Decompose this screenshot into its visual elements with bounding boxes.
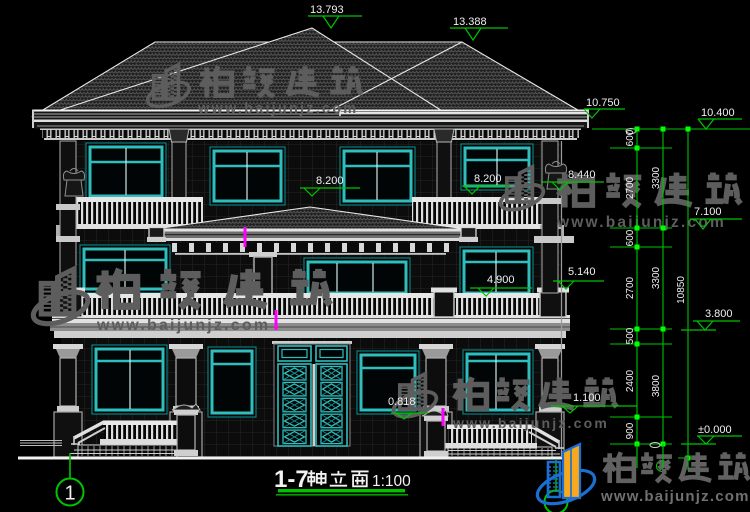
svg-text:500: 500	[625, 327, 636, 344]
svg-text:600: 600	[625, 129, 636, 146]
svg-text:7.100: 7.100	[694, 206, 722, 218]
svg-text:2700: 2700	[625, 176, 636, 199]
svg-text:600: 600	[625, 229, 636, 246]
svg-text:1:100: 1:100	[372, 473, 411, 490]
svg-text:3800: 3800	[651, 374, 662, 397]
svg-text:±0.000: ±0.000	[698, 424, 732, 436]
svg-text:0.818: 0.818	[388, 396, 416, 408]
svg-text:5.140: 5.140	[568, 266, 596, 278]
svg-text:10850: 10850	[676, 276, 687, 304]
svg-text:3300: 3300	[651, 166, 662, 189]
svg-text:3300: 3300	[651, 266, 662, 289]
svg-text:13.793: 13.793	[310, 4, 344, 16]
svg-text:www.baijunjz.com: www.baijunjz.com	[600, 488, 750, 505]
svg-text:www.baijunjz.com: www.baijunjz.com	[96, 317, 270, 334]
svg-text:8.200: 8.200	[474, 173, 502, 185]
svg-text:www.baijunjz.com: www.baijunjz.com	[197, 101, 358, 117]
svg-text:1.100: 1.100	[573, 392, 601, 404]
svg-text:10.750: 10.750	[586, 97, 620, 109]
svg-text:8.200: 8.200	[316, 175, 344, 187]
svg-text:10.400: 10.400	[701, 107, 735, 119]
svg-text:13.388: 13.388	[453, 16, 487, 28]
svg-text:4.900: 4.900	[487, 274, 515, 286]
svg-text:2400: 2400	[625, 369, 636, 392]
svg-text:8.440: 8.440	[568, 169, 596, 181]
svg-text:3.800: 3.800	[705, 308, 733, 320]
svg-text:1-7: 1-7	[274, 466, 309, 493]
svg-text:1: 1	[64, 483, 75, 505]
svg-text:2700: 2700	[625, 276, 636, 299]
svg-text:900: 900	[625, 422, 636, 439]
svg-text:www.baijunjz.com: www.baijunjz.com	[452, 415, 609, 431]
